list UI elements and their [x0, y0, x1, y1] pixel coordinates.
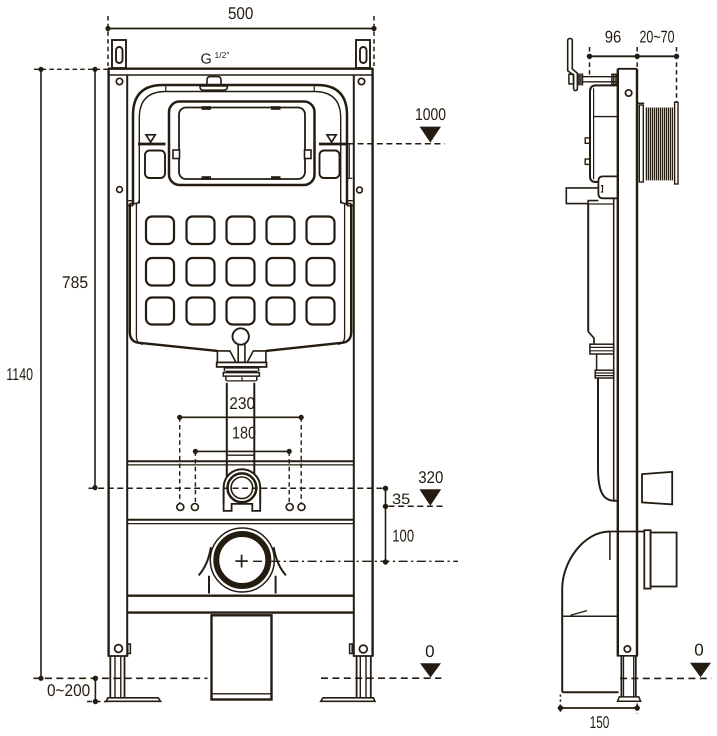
svg-text:230: 230 [229, 394, 255, 413]
svg-text:0: 0 [694, 640, 703, 659]
svg-text:100: 100 [392, 526, 414, 545]
svg-text:1/2″: 1/2″ [215, 50, 230, 60]
svg-text:0: 0 [425, 642, 434, 661]
svg-text:96: 96 [605, 27, 622, 46]
svg-text:1000: 1000 [415, 105, 446, 124]
svg-text:150: 150 [590, 713, 610, 732]
svg-text:785: 785 [62, 273, 88, 292]
svg-text:20~70: 20~70 [640, 27, 675, 46]
svg-text:35: 35 [392, 491, 410, 508]
svg-text:500: 500 [228, 4, 254, 23]
svg-text:320: 320 [418, 468, 443, 487]
svg-text:0~200: 0~200 [47, 681, 90, 700]
svg-text:G: G [201, 52, 212, 68]
svg-text:180: 180 [232, 424, 256, 443]
svg-text:1140: 1140 [6, 365, 33, 384]
